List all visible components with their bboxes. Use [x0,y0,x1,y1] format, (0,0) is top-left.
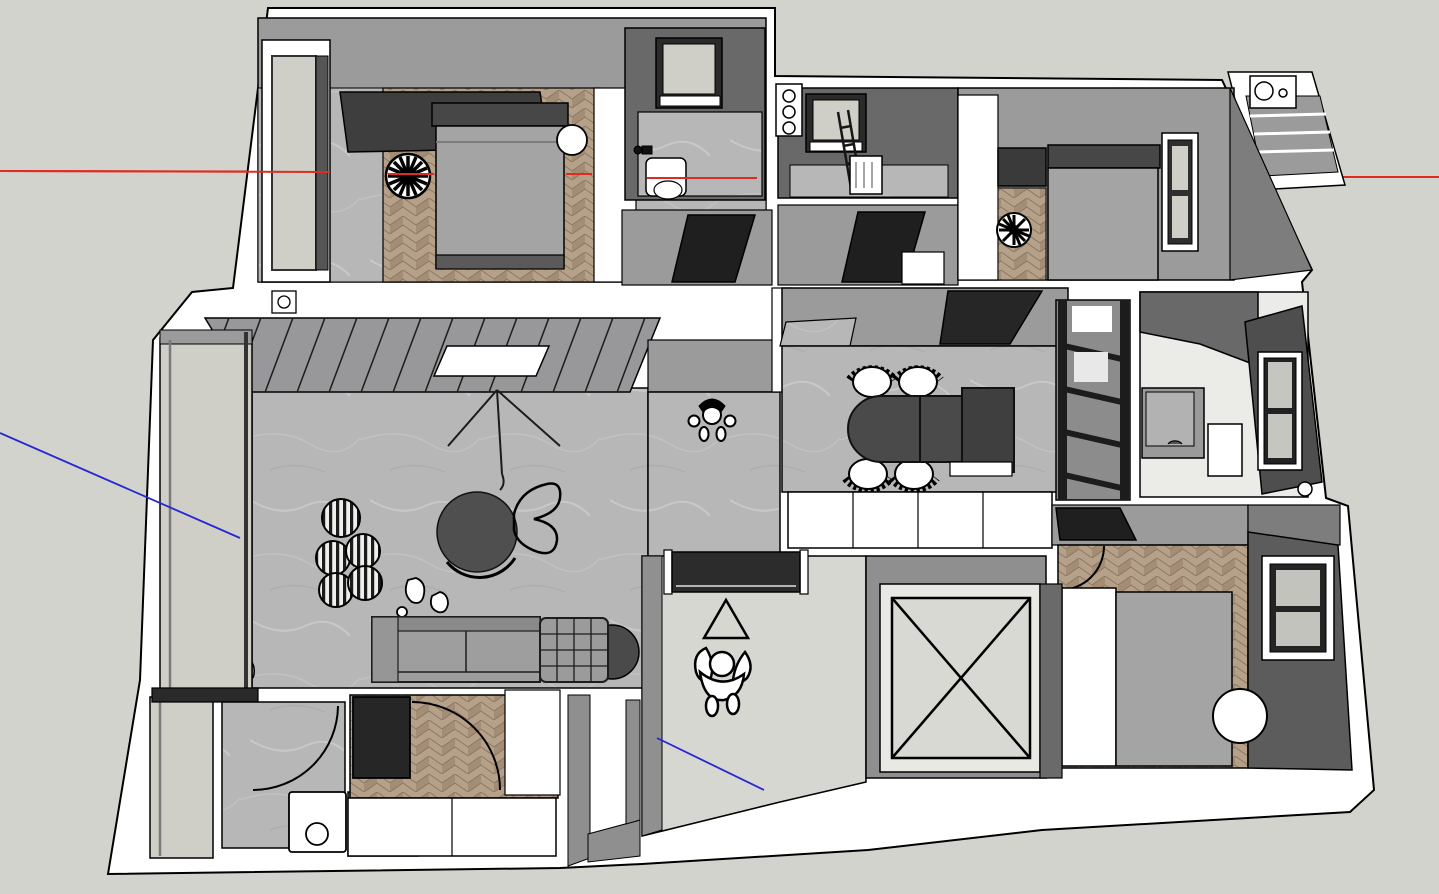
tufted-chaise [540,618,608,682]
bathroom1-window [656,38,722,108]
ledge-fixture-circle-small [1279,89,1287,97]
bed-2 [1048,145,1160,280]
double-bed [432,103,568,269]
room-laundry-bathroom [776,84,958,285]
ceiling-fan-2 [997,213,1031,247]
sideboard-row [788,492,1052,548]
bed-3 [1116,592,1232,766]
wall-faucet [634,146,652,154]
study-desk [353,697,410,778]
sofa-with-chaise [372,617,639,682]
platform-cabinets [348,798,556,856]
laundry-basket [850,156,882,194]
louvered-ceiling [200,315,660,395]
round-coffee-table [437,492,517,572]
study-closet [505,690,560,795]
ledge-fixture-circle-large [1255,82,1273,100]
bedroom-doors-band [622,210,772,285]
floor-drain [1298,482,1312,496]
ball-pouf [1213,689,1267,743]
skylight [434,346,549,376]
ceiling-fan [386,154,430,198]
washing-machine [289,792,346,852]
buffet-cabinet [962,388,1014,472]
room-bathroom-right [1140,292,1322,497]
wall-sensor [272,291,296,313]
room-bedroom-3 [1052,505,1352,770]
bedroom2-closet [958,95,998,280]
bedroom3-window [1262,556,1334,660]
mirror-panel [1208,424,1242,476]
floor-plan-canvas[interactable] [0,0,1439,894]
room-bathroom-top [625,28,765,200]
bath3-window [1258,352,1302,470]
dining-step-slab [780,318,856,346]
ladder-shelf [1056,300,1130,500]
round-nightstand [557,125,587,155]
bedroom2-window [1162,133,1198,251]
elevator-shaft [866,556,1062,778]
living-balcony [160,330,252,698]
vanity-sink [1142,388,1204,458]
entry-door [664,550,808,594]
fixture-panel [776,84,802,136]
bedroom1-balcony-window [262,40,330,282]
bedroom2-cabinet [998,148,1046,186]
model-viewport[interactable] [0,0,1439,894]
room-living [200,291,660,688]
bedroom3-wardrobe [1062,588,1116,766]
laundry-window [806,94,866,152]
